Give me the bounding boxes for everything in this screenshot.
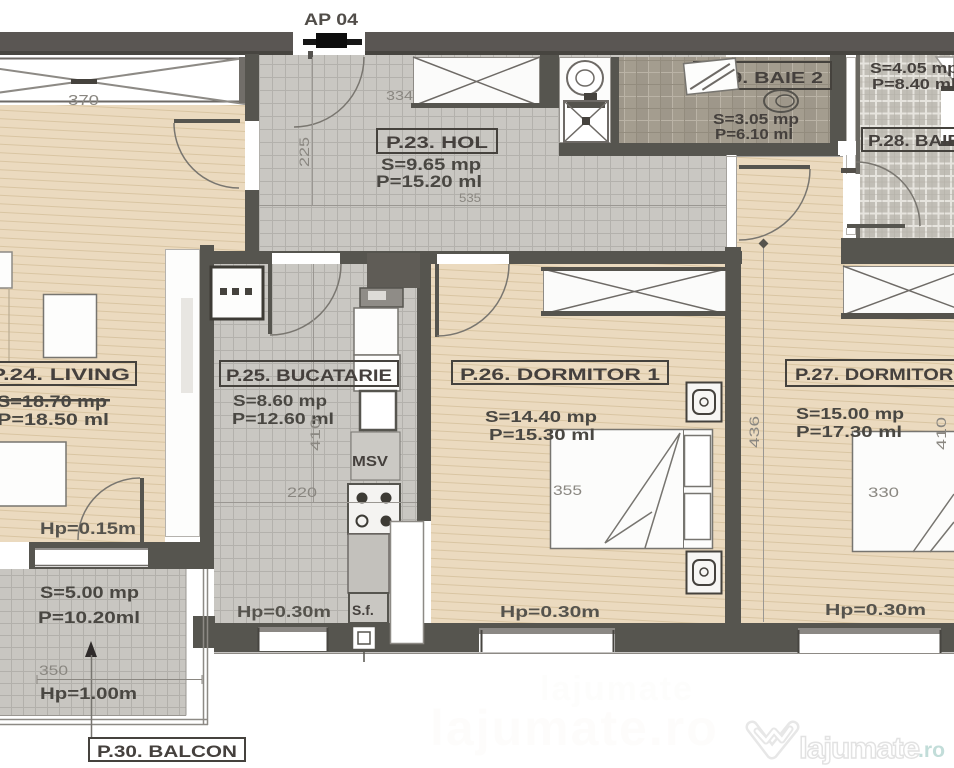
svg-text:S=15.00 mp: S=15.00 mp (796, 406, 904, 423)
svg-text:P.24. LIVING: P.24. LIVING (0, 365, 130, 384)
svg-text:Hp=0.30m: Hp=0.30m (825, 602, 926, 619)
svg-text:P.28. BAIE: P.28. BAIE (868, 133, 954, 150)
svg-text:P.30. BALCON: P.30. BALCON (97, 742, 237, 761)
svg-text:Hp=0.15m: Hp=0.15m (40, 519, 136, 538)
svg-text:P=15.30 ml: P=15.30 ml (489, 427, 595, 444)
svg-text:Hp=0.30m: Hp=0.30m (237, 604, 331, 621)
svg-text:P.25. BUCATARIE: P.25. BUCATARIE (226, 366, 392, 385)
svg-text:350: 350 (39, 662, 68, 678)
svg-text:S=5.00 mp: S=5.00 mp (40, 583, 139, 602)
svg-text:535: 535 (459, 191, 481, 205)
svg-text:AP 04: AP 04 (304, 10, 359, 29)
svg-text:334: 334 (386, 88, 413, 103)
svg-text:S.f.: S.f. (352, 602, 374, 618)
svg-text:S=4.05 mp: S=4.05 mp (870, 60, 954, 77)
svg-text:.ro: .ro (918, 739, 945, 762)
svg-text:P=8.40 ml: P=8.40 ml (872, 76, 954, 93)
svg-text:355: 355 (553, 482, 582, 498)
svg-text:P.23. HOL: P.23. HOL (386, 133, 488, 152)
svg-text:P.26. DORMITOR 1: P.26. DORMITOR 1 (460, 365, 660, 384)
svg-text:Hp=1.00m: Hp=1.00m (40, 684, 137, 703)
svg-text:225: 225 (296, 137, 312, 167)
svg-text:Hp=0.30m: Hp=0.30m (500, 604, 600, 621)
svg-text:S=14.40 mp: S=14.40 mp (485, 409, 597, 426)
svg-text:220: 220 (287, 484, 317, 500)
svg-text:P=18.50 ml: P=18.50 ml (0, 410, 109, 429)
svg-text:lajumate: lajumate (540, 670, 694, 708)
svg-text:P.27. DORMITOR 2: P.27. DORMITOR 2 (795, 365, 954, 384)
svg-text:410: 410 (307, 418, 323, 451)
svg-text:P=15.20 ml: P=15.20 ml (376, 172, 482, 191)
svg-text:436: 436 (746, 416, 762, 448)
svg-text:lajumate.ro: lajumate.ro (430, 700, 719, 756)
svg-text:S=8.60 mp: S=8.60 mp (233, 393, 327, 410)
svg-text:330: 330 (868, 484, 899, 500)
svg-text:MSV: MSV (352, 453, 388, 470)
svg-text:370: 370 (68, 92, 99, 109)
svg-text:lajumate: lajumate (799, 732, 919, 765)
svg-text:410: 410 (933, 417, 949, 450)
svg-text:P=10.20ml: P=10.20ml (38, 608, 140, 627)
svg-text:P=17.30 ml: P=17.30 ml (796, 424, 902, 441)
svg-text:P=6.10 ml: P=6.10 ml (715, 126, 793, 143)
